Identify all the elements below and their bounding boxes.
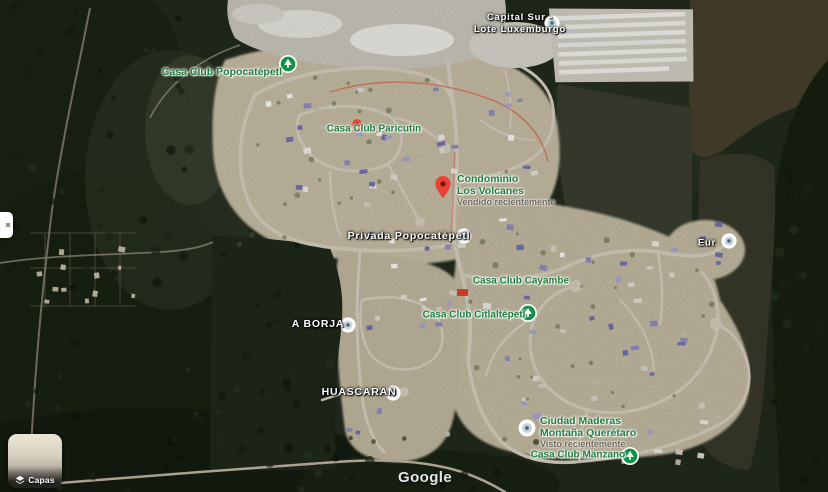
collapsed-side-control[interactable] [0,212,13,238]
label-line: Capital Sur - [474,12,566,24]
google-watermark: Google [398,469,452,486]
poi-label-condominio-los-volcanes[interactable]: Condominio Los Volcanes Vendido reciente… [457,174,556,209]
poi-label-ciudad-maderas[interactable]: Ciudad Maderas Montaña Querétaro Visto r… [540,416,636,451]
poi-label-casa-club-popocatepetl[interactable]: Casa Club Popocatépetl [162,66,282,78]
visited-place-marker-eur[interactable] [721,233,738,250]
poi-label-casa-club-citlaltepetl[interactable]: Casa Club Citlaltépetl [423,310,526,321]
map-viewport[interactable]: Capital Sur - Lote Luxemburgo Casa Club … [0,0,828,492]
label-line: Condominio [457,174,556,186]
label-line: Ciudad Maderas [540,416,636,428]
label-eur-partial: Eur [698,238,716,249]
poi-label-casa-club-paricutin[interactable]: Casa Club Paricutín [327,124,421,135]
street-label-huascaran[interactable]: HUASCARAN [322,386,397,398]
visited-place-marker-ciudad-maderas[interactable] [518,419,537,438]
layers-button-label: Capas [28,475,55,485]
label-line: Los Volcanes [457,186,556,198]
locality-label-a-borja[interactable]: A BORJA [292,318,344,330]
poi-label-casa-club-cayambe[interactable]: Casa Club Cayambe [473,276,569,287]
red-pin-marker-los-volcanes[interactable] [435,176,451,198]
label-line: Montaña Querétaro [540,428,636,440]
layers-button[interactable]: Capas [8,434,62,488]
street-label-privada-popocatepetl[interactable]: Privada Popocatépetl [348,230,471,242]
poi-label-casa-club-manzano[interactable]: Casa Club Manzano [531,450,625,461]
layers-icon [15,475,25,485]
locality-label-capital-sur[interactable]: Capital Sur - Lote Luxemburgo [474,12,566,35]
label-subtext: Vendido recientemente [457,197,556,209]
label-line: Lote Luxemburgo [474,24,566,36]
